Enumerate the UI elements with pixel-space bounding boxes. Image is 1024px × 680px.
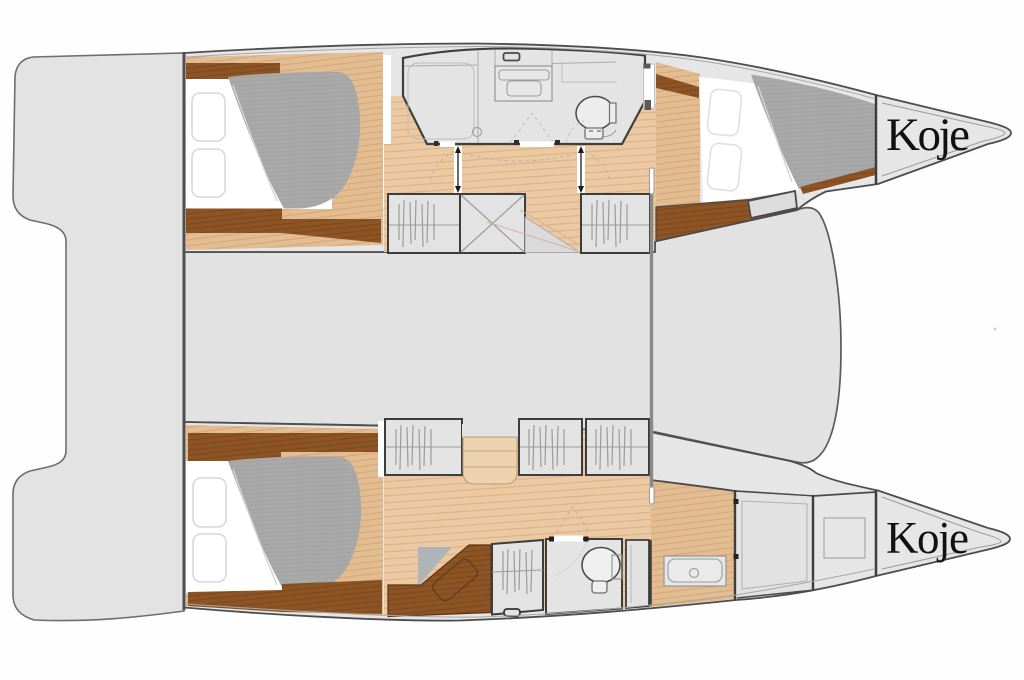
svg-text:Koje: Koje xyxy=(886,513,969,563)
svg-text:Koje: Koje xyxy=(886,109,970,161)
